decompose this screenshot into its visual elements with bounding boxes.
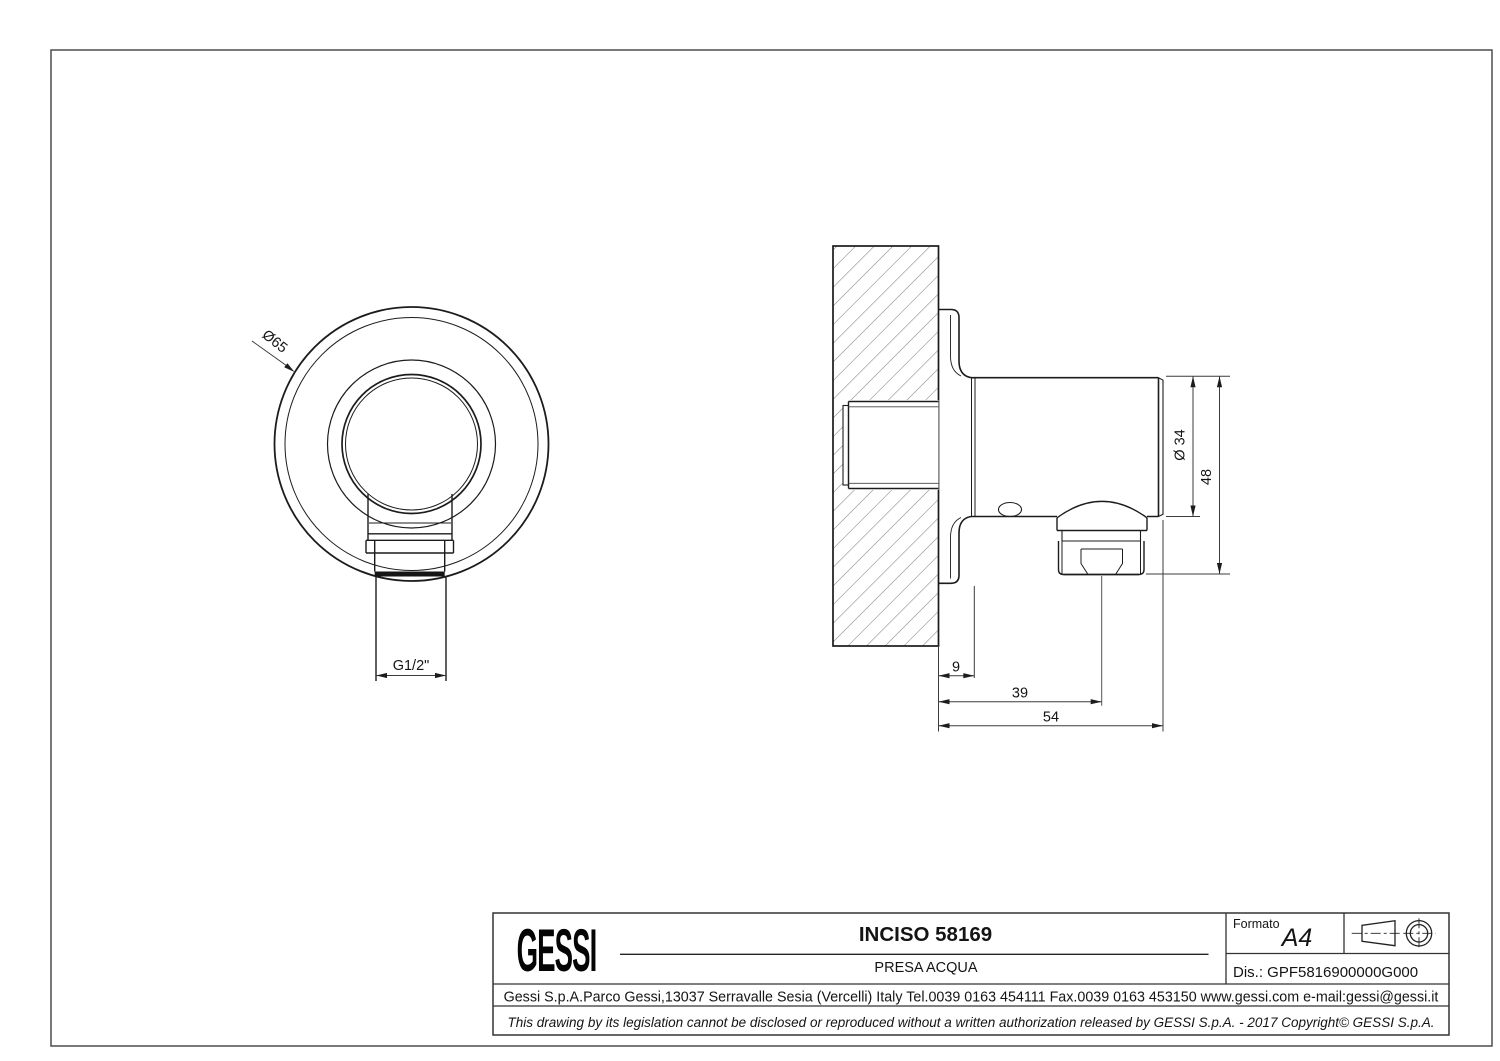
dim-arrow-right-icon [1091,699,1102,704]
rosette-bevel-circle [285,318,538,571]
dim-arrow-left-icon [376,673,387,678]
title-block: GESSI INCISO 58169 PRESA ACQUA Formato A… [493,913,1449,1035]
total-height-label: 48 [1199,469,1215,485]
outlet-connector [1057,501,1147,574]
outlet-center-label: 39 [1012,686,1028,702]
dim-arrow-right-icon [963,673,974,678]
set-screw-hole [999,503,1022,517]
dim-arrow-left-icon [939,699,950,704]
gessi-logo: GESSI [517,917,597,984]
body-diameter-label: Ø 34 [1173,429,1189,460]
dim-arrow-up-icon [1190,376,1195,387]
dim-arrow-left-icon [939,723,950,728]
front-thread-label: G1/2" [393,658,430,674]
dim-arrow-down-icon [1217,563,1222,574]
socket-circle-inner [346,378,478,510]
dimension-wall-offset: 9 [939,660,975,679]
dim-arrow-left-icon [939,673,950,678]
dimension-total-height: 48 [1199,376,1222,574]
socket-circle-outer [342,375,481,514]
dimension-front-thread: G1/2" [376,658,446,678]
front-view: Ø65 G1/2" [252,307,549,681]
company-info: Gessi S.p.A.Parco Gessi,13037 Serravalle… [504,990,1439,1006]
dim-arrow-right-icon [435,673,446,678]
format-value: A4 [1280,924,1313,952]
body-cylinder [971,378,1163,517]
dim-arrow-up-icon [1217,376,1222,387]
dim-arrow-down-icon [1190,506,1195,517]
technical-drawing-canvas: Ø65 G1/2" [0,0,1500,1061]
drawing-number: Dis.: GPF5816900000G000 [1233,964,1418,981]
copyright-disclaimer: This drawing by its legislation cannot b… [508,1015,1435,1030]
dimension-body-diameter: Ø 34 [1173,376,1196,516]
drawing-sheet: Ø65 G1/2" [0,0,1500,1061]
wall-inlet-pipe [843,400,939,490]
wall-offset-label: 9 [952,660,960,676]
gessi-logo-text: GESSI [517,917,597,984]
drawing-title: INCISO 58169 [859,923,992,946]
side-view: 9 39 54 Ø 34 48 [833,246,1230,732]
drawing-subtitle: PRESA ACQUA [874,960,977,976]
dim-arrow-right-icon [1152,723,1163,728]
front-diameter-label: Ø65 [259,327,290,356]
dimension-outlet-center: 39 [939,686,1102,705]
dimension-total-depth: 54 [939,710,1164,729]
drawing-frame [51,50,1492,1046]
total-depth-label: 54 [1043,710,1059,726]
format-label: Formato [1233,917,1280,931]
dimension-front-diameter: Ø65 [252,327,295,372]
rosette-profile [939,310,972,584]
middle-circle [328,360,496,528]
projection-symbol-icon [1352,918,1436,948]
